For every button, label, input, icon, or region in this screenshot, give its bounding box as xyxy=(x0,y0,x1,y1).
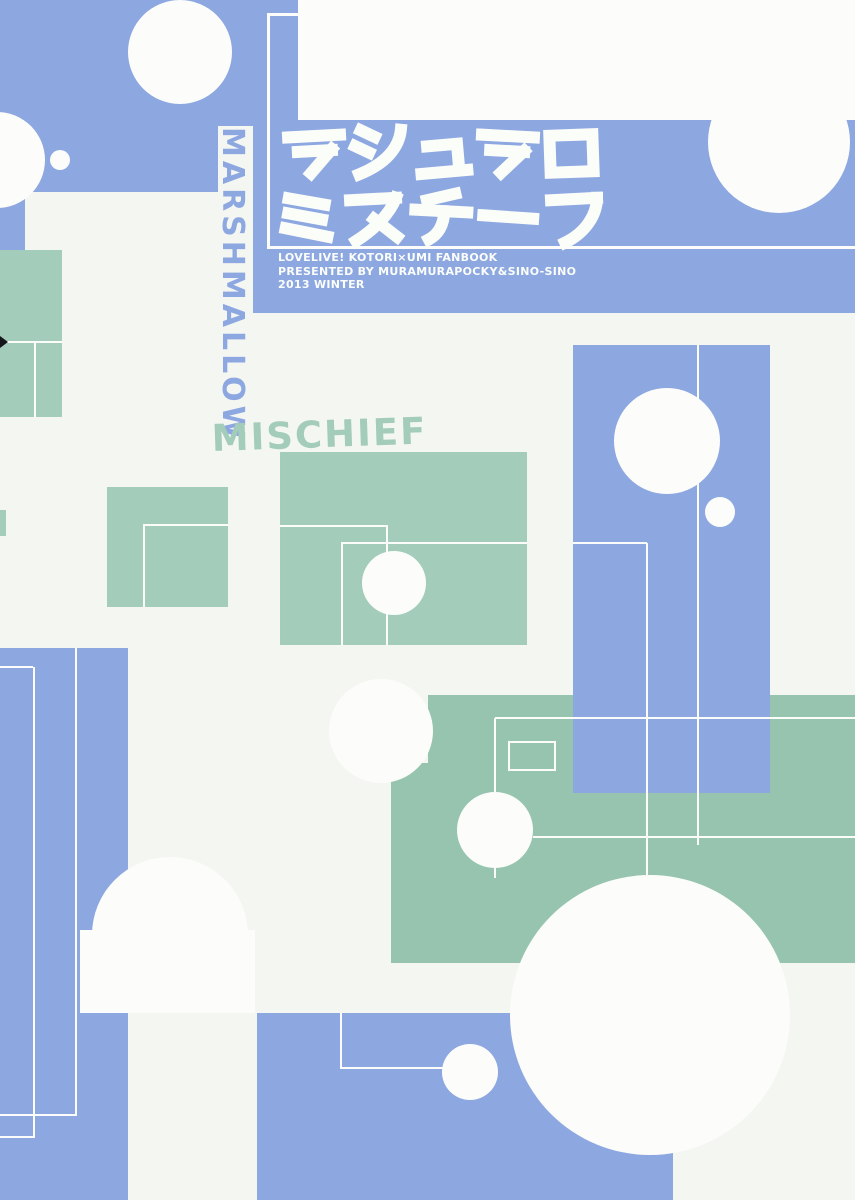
green-block-center xyxy=(280,452,527,645)
bottom-rect-line-vertical xyxy=(340,1013,342,1069)
white-circle-on-blue-bottom xyxy=(442,1044,498,1100)
white-circle-bottom-large xyxy=(510,875,790,1155)
slab-line-bottom-outer xyxy=(0,1114,77,1116)
green-square-line-horizontal xyxy=(143,524,228,526)
line-vertical-698 xyxy=(697,345,699,845)
white-circle-on-green-center xyxy=(362,551,426,615)
white-notch-circle-green-edge xyxy=(329,679,433,783)
white-circle-on-green-mass xyxy=(457,792,533,868)
green-center-line-v2 xyxy=(341,542,343,645)
kana-ma-2 xyxy=(480,135,534,175)
doujinshi-back-cover: マシュマロ ミスチーフ LOVELIVE! KOTORI×UMI FANBOOK… xyxy=(0,0,855,1200)
small-outline-rect-green xyxy=(508,741,556,771)
kana-choonpu xyxy=(483,215,533,218)
line-horizontal-718 xyxy=(495,717,855,719)
kana-shi xyxy=(354,128,401,176)
scan-artifact-mark xyxy=(0,336,8,348)
slab-line-bottom-inner xyxy=(0,1136,35,1138)
slab-line-top xyxy=(0,666,33,668)
green-block-bottom-right-left-strip xyxy=(391,763,428,963)
white-dot-top-left xyxy=(50,150,70,170)
green-left-line-horizontal xyxy=(0,341,62,343)
line-blue-rect-horizontal xyxy=(573,542,647,544)
bottom-rect-line-horizontal xyxy=(340,1067,444,1069)
subtitle-credits: LOVELIVE! KOTORI×UMI FANBOOK PRESENTED B… xyxy=(278,251,576,292)
kana-ro xyxy=(549,134,593,172)
title-katakana xyxy=(275,112,620,262)
green-sliver-left-edge xyxy=(0,510,6,536)
line-horizontal-837 xyxy=(533,836,855,838)
subtitle-line-fanbook: LOVELIVE! KOTORI×UMI FANBOOK xyxy=(278,251,576,265)
diagonal-text-mischief: MISCHIEF xyxy=(211,409,428,460)
green-left-line-vertical xyxy=(34,343,36,417)
white-circle-on-blue-rect xyxy=(614,388,720,494)
white-circle-top-left-large xyxy=(128,0,232,104)
slab-line-vertical-inner xyxy=(33,667,35,1137)
white-bite-rect-slab xyxy=(80,930,255,1013)
subtitle-line-season: 2013 WINTER xyxy=(278,278,576,292)
white-dot-on-blue-rect xyxy=(705,497,735,527)
kana-mi xyxy=(285,198,328,236)
green-rect-left xyxy=(0,250,62,417)
kana-yu-small xyxy=(419,143,467,174)
subtitle-line-presenter: PRESENTED BY MURAMURAPOCKY&SINO-SINO xyxy=(278,265,576,279)
line-vertical-495-lower xyxy=(494,866,496,878)
kana-ma-1 xyxy=(288,135,342,175)
kana-chi xyxy=(414,192,468,242)
kana-su xyxy=(350,198,398,241)
line-vertical-495-upper xyxy=(494,718,496,792)
kana-fu xyxy=(551,198,599,243)
green-center-line-h2 xyxy=(341,542,527,544)
vertical-text-marshmallow: MARSHMALLOW xyxy=(212,127,250,437)
green-center-line-h1 xyxy=(280,525,387,527)
green-square-mid-left xyxy=(107,487,228,607)
line-vertical-647 xyxy=(646,543,648,875)
green-square-line-vertical xyxy=(143,524,145,607)
slab-line-vertical-outer xyxy=(75,648,77,1115)
